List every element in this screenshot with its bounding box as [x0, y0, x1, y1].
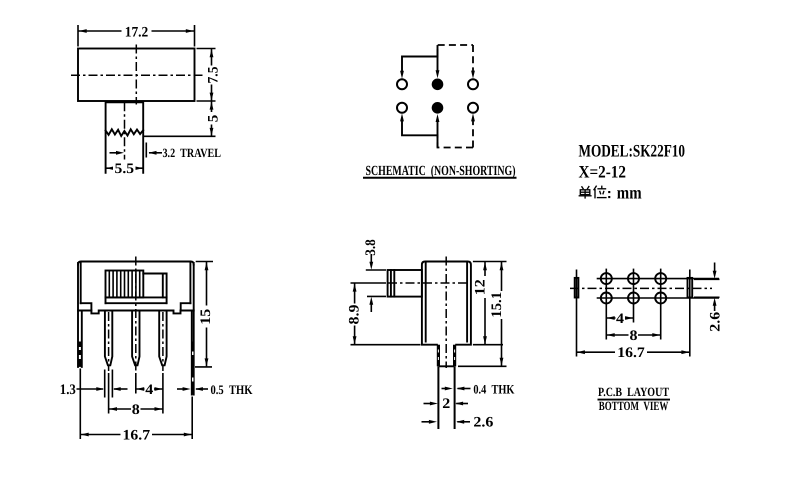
svg-text:BOTTOM VIEW: BOTTOM VIEW [599, 399, 669, 413]
svg-text:3.2 TRAVEL: 3.2 TRAVEL [163, 146, 222, 160]
svg-text:MODEL:SK22F10: MODEL:SK22F10 [579, 141, 686, 161]
svg-text:15: 15 [198, 309, 214, 325]
svg-text:8.9: 8.9 [346, 305, 362, 325]
svg-text:4: 4 [145, 382, 153, 398]
svg-text:2.6: 2.6 [707, 312, 723, 332]
svg-text:7.5: 7.5 [205, 67, 221, 84]
svg-text:16.7: 16.7 [123, 427, 151, 443]
svg-text:15.1: 15.1 [489, 292, 505, 318]
svg-text:16.7: 16.7 [617, 345, 645, 361]
svg-text:0.5 THK: 0.5 THK [211, 382, 254, 397]
svg-text:17.2: 17.2 [125, 24, 149, 40]
svg-text:P.C.B LAYOUT: P.C.B LAYOUT [598, 385, 669, 399]
svg-text:2.6: 2.6 [473, 415, 493, 431]
svg-text:3.8: 3.8 [363, 239, 379, 256]
svg-text:8: 8 [132, 402, 140, 418]
svg-text:0.4 THK: 0.4 THK [473, 381, 515, 396]
svg-text:12: 12 [472, 279, 488, 295]
svg-text:5.5: 5.5 [115, 161, 135, 177]
svg-text:1.3: 1.3 [60, 382, 76, 398]
svg-text:mm: mm [617, 182, 642, 202]
svg-text:2: 2 [442, 396, 450, 412]
svg-text:5: 5 [205, 115, 221, 123]
svg-text:4: 4 [616, 311, 624, 327]
svg-text:8: 8 [630, 328, 638, 344]
svg-text:X=2-12: X=2-12 [579, 162, 627, 182]
